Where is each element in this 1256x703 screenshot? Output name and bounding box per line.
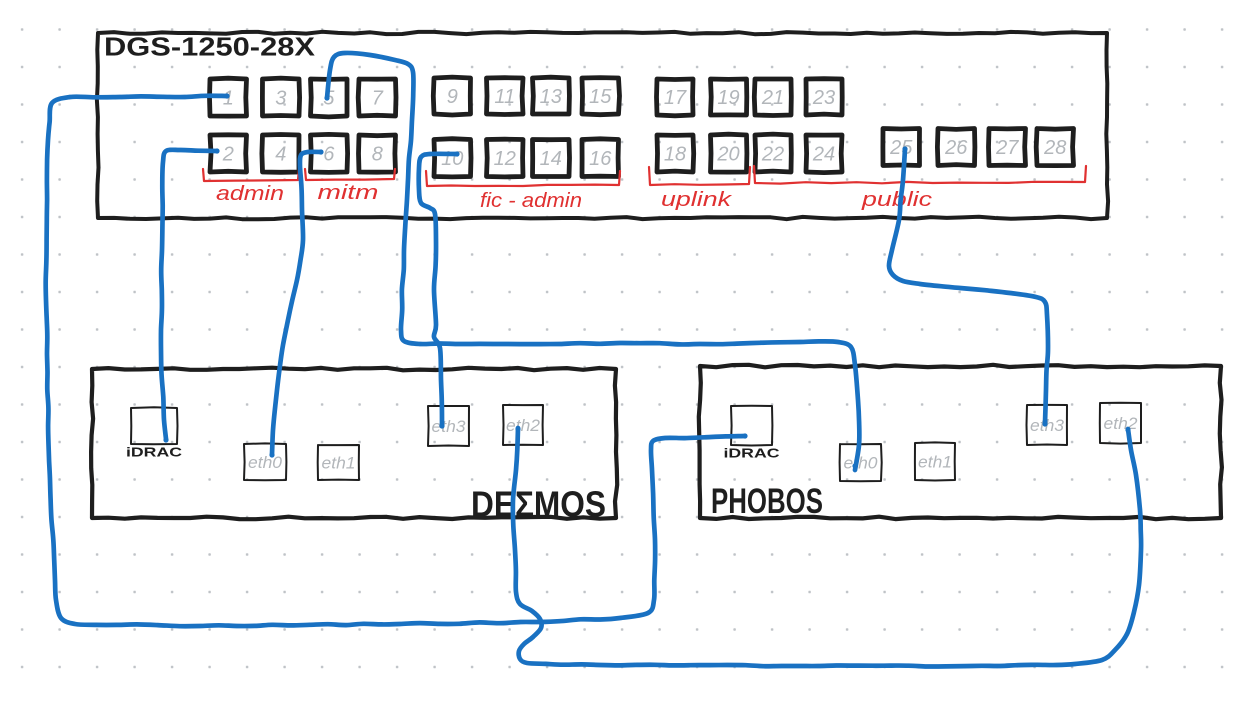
- svg-text:17: 17: [664, 87, 687, 109]
- svg-text:16: 16: [589, 148, 612, 170]
- svg-text:eth0: eth0: [248, 453, 283, 472]
- svg-text:eth1: eth1: [918, 453, 952, 472]
- svg-text:6: 6: [323, 144, 335, 166]
- svg-text:eth2: eth2: [1104, 414, 1139, 433]
- svg-text:iDRAC: iDRAC: [126, 445, 183, 460]
- svg-text:mitm: mitm: [318, 182, 379, 204]
- svg-text:24: 24: [812, 144, 835, 166]
- svg-text:public: public: [861, 189, 932, 211]
- svg-text:22: 22: [761, 144, 784, 166]
- svg-text:eth2: eth2: [506, 416, 541, 435]
- svg-text:19: 19: [717, 87, 739, 109]
- svg-text:26: 26: [944, 137, 968, 159]
- svg-text:9: 9: [447, 86, 458, 108]
- svg-text:iDRAC: iDRAC: [724, 446, 781, 461]
- svg-text:13: 13: [540, 86, 562, 108]
- svg-text:20: 20: [716, 144, 739, 166]
- svg-text:eth0: eth0: [844, 454, 879, 473]
- svg-text:uplink: uplink: [661, 189, 732, 211]
- svg-text:10: 10: [441, 148, 463, 170]
- svg-text:3: 3: [275, 88, 286, 110]
- svg-text:14: 14: [540, 148, 562, 170]
- svg-text:12: 12: [494, 148, 516, 170]
- svg-text:8: 8: [372, 144, 383, 166]
- svg-text:DGS-1250-28X: DGS-1250-28X: [104, 32, 316, 62]
- svg-text:eth3: eth3: [432, 417, 467, 436]
- svg-text:fic - admin: fic - admin: [480, 190, 582, 212]
- svg-text:15: 15: [589, 86, 612, 108]
- svg-text:27: 27: [995, 137, 1019, 159]
- svg-text:4: 4: [275, 144, 286, 166]
- svg-text:1: 1: [223, 88, 234, 110]
- svg-text:23: 23: [812, 87, 835, 109]
- svg-text:DEΣMOS: DEΣMOS: [471, 484, 606, 525]
- svg-text:7: 7: [372, 88, 384, 110]
- svg-text:eth1: eth1: [322, 454, 356, 473]
- svg-text:PHOBOS: PHOBOS: [711, 482, 823, 521]
- svg-text:2: 2: [222, 144, 234, 166]
- svg-text:21: 21: [761, 87, 784, 109]
- svg-text:25: 25: [889, 137, 913, 159]
- svg-text:admin: admin: [216, 183, 284, 205]
- svg-text:28: 28: [1043, 137, 1066, 159]
- svg-text:18: 18: [664, 144, 686, 166]
- svg-text:11: 11: [494, 86, 515, 108]
